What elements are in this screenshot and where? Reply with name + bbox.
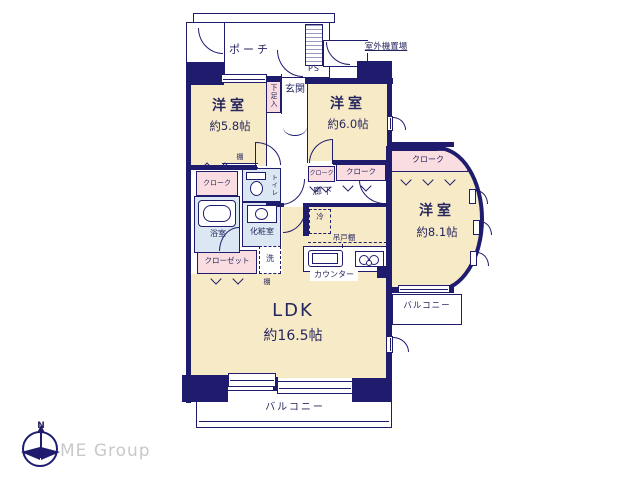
compass-wing-right-icon [41, 447, 60, 460]
ldk-bottom-window-b [277, 381, 353, 394]
casement-window [469, 189, 476, 204]
shelf-b-label: 棚 [259, 277, 275, 288]
bedroom-mid-area-label: 約6.0帖 [314, 118, 382, 132]
entrance-label: 玄関 [282, 83, 308, 96]
balcony-right-label: バルコニー [397, 300, 457, 313]
bedroom-small-door-leaf [255, 142, 256, 166]
ldk-bottom-window-a [228, 373, 276, 387]
balcony-rail-line [199, 421, 389, 422]
fridge-label: 冷 [310, 211, 330, 222]
corner-block-bottom-left [182, 375, 228, 402]
porch-window [221, 74, 267, 83]
corner-block-bottom-mid [352, 378, 392, 402]
left-outer-wall [186, 62, 191, 403]
bedroom-mid-window-arc [393, 117, 406, 130]
casement-window-arc [480, 221, 492, 235]
outdoor-unit-label: 室外機置場 [358, 41, 414, 53]
hanger-chevron [422, 174, 433, 185]
shoe-cabinet-label: 下足入 [267, 81, 280, 111]
toilet-bowl [250, 181, 263, 196]
company-logo-text: ME Group [60, 438, 200, 464]
toilet-label: トイレ [268, 170, 279, 200]
fridge-wall-stub [303, 203, 309, 236]
corner-block-top-right [357, 61, 392, 84]
ldk-right-door-window [386, 336, 393, 353]
powder-room-label: 化粧室 [243, 226, 281, 238]
bedroom-large-bottom-window [398, 285, 450, 293]
ldk-right-door-arc [393, 337, 409, 352]
shelf-a-label: 棚 [232, 152, 248, 163]
toilet-tank [246, 172, 266, 180]
hanger-chevron [400, 174, 411, 185]
cloak-hall-b-label: クローク [337, 164, 385, 179]
stove-small-burner [366, 260, 372, 266]
bathtub-inner [203, 205, 231, 222]
kitchen-sink-basin [312, 253, 338, 264]
hanging-cupboard-leader [342, 244, 343, 248]
vanity-sink-bowl [255, 208, 268, 220]
pipe-shaft [305, 24, 323, 66]
bedroom-small-area-label: 約5.8帖 [196, 120, 264, 134]
bedroom-mid-type-label: 洋室 [318, 95, 378, 113]
cloak-right-label: クローク [392, 153, 464, 167]
casement-window [470, 251, 477, 266]
counter-end-stub [377, 266, 390, 278]
bathroom-label: 浴室 [202, 228, 234, 240]
ldk-area-label: 約16.5帖 [247, 327, 339, 344]
ps-label: PS [303, 63, 325, 74]
hanging-cupboard-label: 吊戸棚 [326, 233, 362, 243]
bedroom-mid-right-wall-b [387, 130, 392, 146]
porch-label: ポーチ [212, 42, 288, 56]
balcony-bottom-label: バルコニー [250, 400, 340, 415]
bedroom-large-area-label: 約8.1帖 [398, 226, 476, 240]
ldk-right-wall-lower [386, 352, 392, 380]
bedroom-large-area: クローク 洋室 約8.1帖 [390, 146, 484, 292]
ldk-area-left [191, 274, 282, 378]
cloak-right-top-wall [388, 142, 454, 147]
laundry-label: 洗 [259, 252, 281, 266]
compass-north-label: N [34, 420, 48, 432]
hanger-chevron [444, 174, 455, 185]
corridor-left-wall-line [266, 112, 267, 166]
cloak-left-label: クローク [197, 172, 237, 194]
casement-window-arc [477, 252, 489, 266]
closet-label: クローゼット [197, 252, 257, 270]
bedroom-mid-right-window [387, 116, 393, 131]
ldk-type-label: LDK [255, 300, 331, 322]
casement-window [473, 220, 480, 235]
counter-label: カウンター [310, 269, 358, 281]
floor-plan: ポーチ PS 室外機置場 クローク 洋室 約8.1帖 [0, 0, 640, 480]
hallway-label: 廊下 [308, 186, 338, 198]
casement-window-arc [476, 190, 488, 204]
compass-wing-left-icon [21, 447, 40, 460]
bedroom-large-type-label: 洋室 [402, 202, 472, 220]
bedroom-small-type-label: 洋室 [200, 97, 260, 115]
cloak-hall-a-label: クローク [309, 167, 334, 180]
bedroom-mid-right-wall-a [387, 84, 392, 117]
kitchen-top-wall [306, 203, 392, 207]
